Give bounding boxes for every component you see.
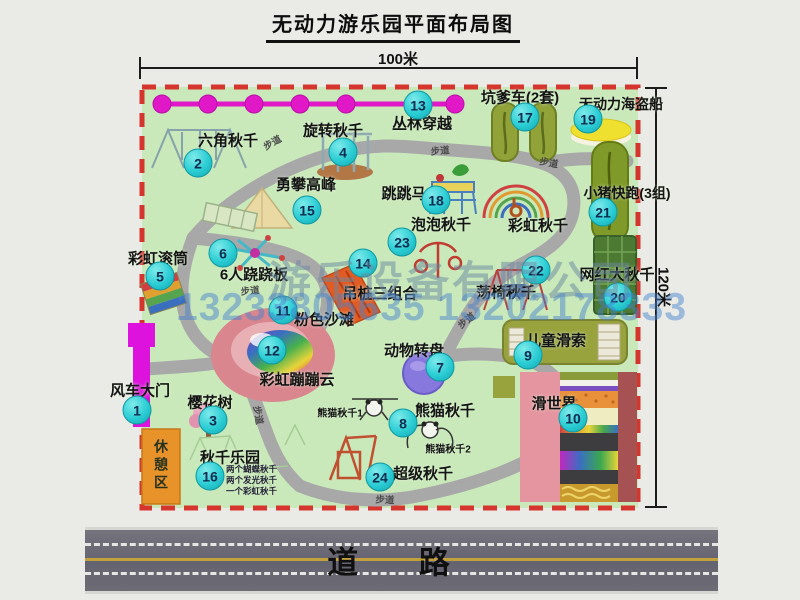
- badge-swing-park: 16: [196, 462, 225, 491]
- swing-park-note-1: 两个蝴蝶秋千: [226, 464, 277, 475]
- label-panda-swing-1: 熊猫秋千1: [317, 405, 363, 420]
- label-super-swing: 超级秋千: [393, 463, 453, 484]
- road-label: 道 路: [327, 537, 476, 582]
- page-title: 无动力游乐园平面布局图: [266, 8, 520, 43]
- label-rainbow-swing: 彩虹秋千: [508, 215, 568, 236]
- badge-jumping-horse: 18: [422, 186, 451, 215]
- scale-height-label: 120米: [654, 267, 675, 307]
- label-pink-beach: 粉色沙滩: [294, 309, 354, 330]
- badge-rotating-swing: 4: [329, 138, 358, 167]
- label-big-net-swing: 网红大秋千: [579, 264, 654, 285]
- badge-swing-chair: 22: [522, 256, 551, 285]
- badge-rainbow-roller: 5: [146, 262, 175, 291]
- park-layout-page: 无动力游乐园平面布局图 100米 120米 风车大门 六角秋千 樱花树 旋转秋千…: [0, 0, 800, 600]
- label-rainbow-bounce-cloud: 彩虹蹦蹦云: [259, 369, 334, 390]
- badge-jungle-crossing: 13: [404, 91, 433, 120]
- label-panda-swing-2: 熊猫秋千2: [425, 441, 471, 456]
- walkway-label: 步道: [375, 492, 395, 507]
- walkway-label: 步道: [240, 282, 260, 298]
- label-seesaw-6p: 6人跷跷板: [220, 264, 288, 285]
- badge-piggy-run: 21: [589, 198, 618, 227]
- badge-super-swing: 24: [366, 463, 395, 492]
- badge-pit-car: 17: [511, 103, 540, 132]
- label-bubble-swing: 泡泡秋千: [411, 214, 471, 235]
- swing-park-note-2: 两个发光秋千: [226, 475, 277, 486]
- badge-big-net-swing: 20: [604, 283, 633, 312]
- road: 道 路: [85, 527, 718, 594]
- swing-park-notes: 两个蝴蝶秋千 两个发光秋千 一个彩虹秋千: [226, 464, 277, 497]
- badge-slide-world: 10: [559, 404, 588, 433]
- badge-cherry-tree: 3: [199, 406, 228, 435]
- walkway-label: 步道: [538, 153, 559, 170]
- scale-width-label: 100米: [378, 48, 418, 69]
- swing-park-note-3: 一个彩虹秋千: [226, 486, 277, 497]
- badge-animal-turntable: 7: [426, 353, 455, 382]
- badge-kids-zipline: 9: [514, 341, 543, 370]
- label-peak-climbing: 勇攀高峰: [276, 174, 336, 195]
- badge-panda-swing: 8: [389, 409, 418, 438]
- badge-pink-beach: 11: [269, 296, 298, 325]
- badge-seesaw-6p: 6: [209, 239, 238, 268]
- badge-peak-climbing: 15: [293, 196, 322, 225]
- label-panda-swing: 熊猫秋千: [415, 400, 475, 421]
- walkway-label: 步道: [250, 404, 267, 425]
- label-hanging-pile: 吊桩三组合: [342, 283, 417, 304]
- walkway-label: 步道: [430, 142, 450, 158]
- rest-area-label: 休憩区: [151, 439, 171, 493]
- badge-windmill-gate: 1: [123, 396, 152, 425]
- label-jumping-horse: 跳跳马: [381, 183, 426, 204]
- badge-bubble-swing: 23: [388, 228, 417, 257]
- badge-pirate-ship: 19: [574, 105, 603, 134]
- badge-rainbow-bounce-cloud: 12: [258, 336, 287, 365]
- label-rotating-swing: 旋转秋千: [303, 120, 363, 141]
- label-swing-chair: 荡椅秋千: [476, 282, 536, 303]
- badge-hanging-pile: 14: [349, 249, 378, 278]
- label-hexagon-swing: 六角秋千: [198, 130, 258, 151]
- badge-hexagon-swing: 2: [184, 149, 213, 178]
